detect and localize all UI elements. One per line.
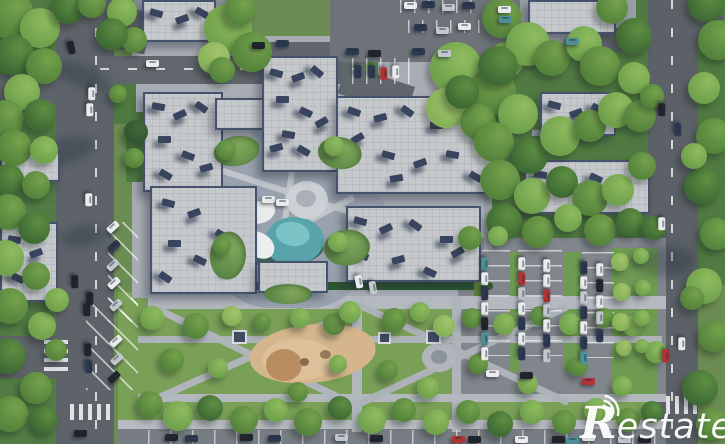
car [659, 217, 666, 230]
tree [474, 122, 514, 162]
car [87, 103, 94, 116]
tree [633, 248, 649, 264]
car [544, 274, 551, 287]
planting-island [264, 284, 312, 304]
tree [382, 308, 406, 332]
tree [700, 218, 725, 250]
watermark: R estate [580, 402, 725, 444]
tree [433, 315, 455, 337]
car [452, 436, 465, 443]
tree [232, 32, 272, 72]
tree [635, 280, 651, 296]
tree [222, 306, 242, 326]
car [422, 1, 435, 8]
tree [534, 40, 570, 76]
car [458, 23, 471, 30]
car [240, 434, 253, 441]
tree [423, 409, 449, 435]
tree [28, 312, 56, 340]
car [519, 347, 526, 360]
car [544, 319, 551, 332]
tree [96, 18, 128, 50]
lane-marking [671, 0, 673, 444]
tree [109, 85, 127, 103]
rooftop-unit [276, 96, 289, 103]
car [566, 437, 579, 444]
car [519, 317, 526, 330]
car [675, 123, 682, 136]
tree [688, 72, 720, 104]
car [355, 65, 362, 78]
plaza [431, 350, 447, 364]
car [414, 24, 427, 31]
car [581, 291, 588, 304]
tree [22, 171, 50, 199]
car [498, 6, 511, 13]
car [482, 332, 489, 345]
aerial-render: R estate [0, 0, 725, 444]
tree [458, 226, 482, 250]
rooftop-unit [440, 236, 453, 243]
car [544, 349, 551, 362]
tree [584, 214, 616, 246]
tree [552, 410, 576, 434]
car [515, 436, 528, 443]
car [369, 65, 376, 78]
tree [378, 360, 398, 380]
car [85, 343, 92, 356]
car [276, 199, 289, 206]
gazebo [378, 332, 391, 344]
car [346, 48, 359, 55]
tree [45, 339, 67, 361]
watermark-letter-r: R [580, 402, 617, 444]
car [581, 351, 588, 364]
car [368, 50, 381, 57]
crosswalk [70, 404, 114, 420]
car [86, 360, 93, 373]
car [663, 349, 670, 362]
tree [288, 382, 308, 402]
car [519, 272, 526, 285]
tree [493, 313, 515, 335]
car [462, 2, 475, 9]
car [185, 435, 198, 442]
tree [634, 310, 650, 326]
tree [635, 339, 649, 353]
car [482, 257, 489, 270]
car [499, 16, 512, 23]
tree [514, 178, 550, 214]
car [597, 295, 604, 308]
car [581, 306, 588, 319]
tree [616, 208, 644, 236]
car [468, 436, 481, 443]
car [146, 60, 159, 67]
tree [328, 396, 352, 420]
tree [580, 46, 620, 86]
car [552, 436, 565, 443]
tree [602, 174, 634, 206]
car [544, 259, 551, 272]
playground-feature [266, 349, 302, 381]
tree [45, 288, 69, 312]
car [482, 347, 489, 360]
car [482, 287, 489, 300]
car [597, 279, 604, 292]
tree [559, 313, 581, 335]
tree [682, 370, 718, 406]
tree [488, 226, 508, 246]
car [276, 40, 289, 47]
car [252, 42, 265, 49]
car [381, 67, 388, 80]
car [597, 311, 604, 324]
car [74, 430, 87, 437]
tree [456, 400, 480, 424]
car [436, 27, 449, 34]
tree [183, 313, 209, 339]
tree [208, 358, 228, 378]
tree [124, 120, 148, 144]
car [84, 303, 91, 316]
playground-feature [320, 350, 331, 359]
tree [22, 262, 50, 290]
tree [478, 46, 518, 86]
car [438, 50, 451, 57]
car [519, 287, 526, 300]
car [566, 38, 579, 45]
car [659, 103, 666, 116]
building [215, 98, 266, 130]
tree [20, 372, 52, 404]
tree [213, 237, 231, 255]
tree [163, 401, 193, 431]
car [442, 4, 455, 11]
car [519, 257, 526, 270]
car [393, 65, 400, 78]
tree [30, 406, 58, 434]
car [486, 370, 499, 377]
tree [294, 408, 322, 436]
tree [124, 148, 144, 168]
watermark-text: estate [617, 407, 725, 444]
tree [24, 99, 56, 131]
tree [18, 212, 50, 244]
tree [328, 232, 348, 252]
car [262, 196, 275, 203]
tree [392, 398, 416, 422]
car [520, 372, 533, 379]
car [544, 289, 551, 302]
tree [417, 377, 439, 399]
tree [230, 406, 258, 434]
tree [616, 18, 652, 54]
car [165, 434, 178, 441]
car [482, 317, 489, 330]
tree [140, 306, 164, 330]
car [482, 272, 489, 285]
gazebo [232, 330, 247, 344]
rooftop-unit [168, 240, 181, 247]
tree [680, 286, 704, 310]
car [519, 302, 526, 315]
tree [253, 313, 271, 331]
car [86, 193, 93, 206]
car [597, 329, 604, 342]
car [72, 275, 79, 288]
tree [216, 140, 236, 160]
tree [628, 152, 656, 180]
car [582, 378, 595, 385]
tree [611, 253, 629, 271]
rooftop-unit [158, 136, 171, 143]
car [519, 332, 526, 345]
tree [264, 398, 288, 422]
tree [681, 143, 707, 169]
tree [137, 391, 163, 417]
car [544, 334, 551, 347]
tree [160, 348, 184, 372]
car [370, 435, 383, 442]
car [482, 302, 489, 315]
tree [329, 355, 347, 373]
tree [30, 136, 58, 164]
car [89, 87, 96, 100]
car [581, 321, 588, 334]
tree [290, 308, 310, 328]
car [544, 304, 551, 317]
tree [522, 216, 554, 248]
tree [487, 411, 513, 437]
car [335, 434, 348, 441]
tree [410, 302, 430, 322]
tree [612, 313, 630, 331]
car [679, 337, 686, 350]
tree [520, 400, 544, 424]
car [581, 336, 588, 349]
playground-feature [300, 358, 309, 366]
car [597, 263, 604, 276]
car [581, 276, 588, 289]
scene-layer [0, 0, 725, 444]
tree [324, 136, 344, 156]
tree [613, 283, 631, 301]
tree [554, 204, 582, 232]
tree [445, 75, 479, 109]
tree [209, 57, 235, 83]
tree [684, 168, 720, 204]
green-strip [564, 252, 582, 372]
tree [616, 340, 632, 356]
pavilion-dome [296, 190, 316, 207]
car [404, 2, 417, 9]
tree [339, 301, 361, 323]
tree [358, 406, 386, 434]
tree [698, 320, 725, 352]
car [412, 48, 425, 55]
car [581, 261, 588, 274]
tree [462, 308, 482, 328]
car [268, 435, 281, 442]
watermark-signal-icon [600, 392, 628, 419]
tree [197, 395, 223, 421]
